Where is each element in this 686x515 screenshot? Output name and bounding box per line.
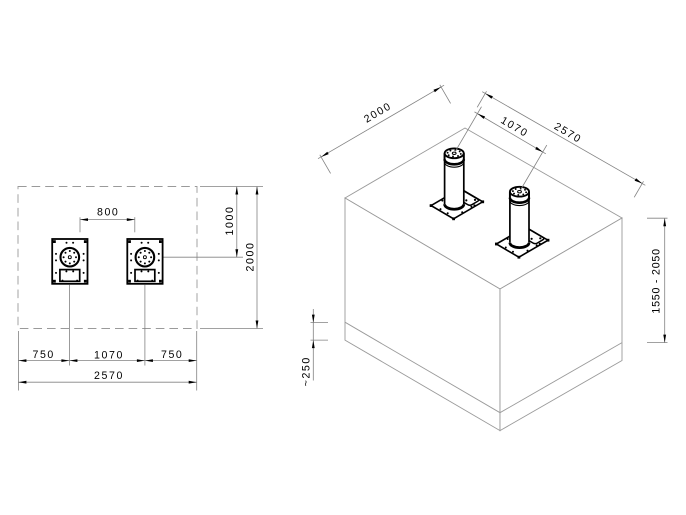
svg-text:800: 800 — [97, 206, 119, 218]
svg-text:2570: 2570 — [94, 370, 124, 382]
svg-text:~250: ~250 — [301, 356, 313, 386]
svg-text:750: 750 — [161, 349, 183, 361]
svg-text:2000: 2000 — [362, 100, 394, 125]
svg-text:1070: 1070 — [498, 114, 530, 140]
svg-text:1000: 1000 — [224, 206, 236, 236]
svg-text:1070: 1070 — [94, 349, 124, 361]
svg-text:2570: 2570 — [552, 120, 584, 146]
svg-text:750: 750 — [32, 349, 54, 361]
svg-text:1550 - 2050: 1550 - 2050 — [651, 248, 663, 313]
svg-text:2000: 2000 — [244, 242, 256, 272]
